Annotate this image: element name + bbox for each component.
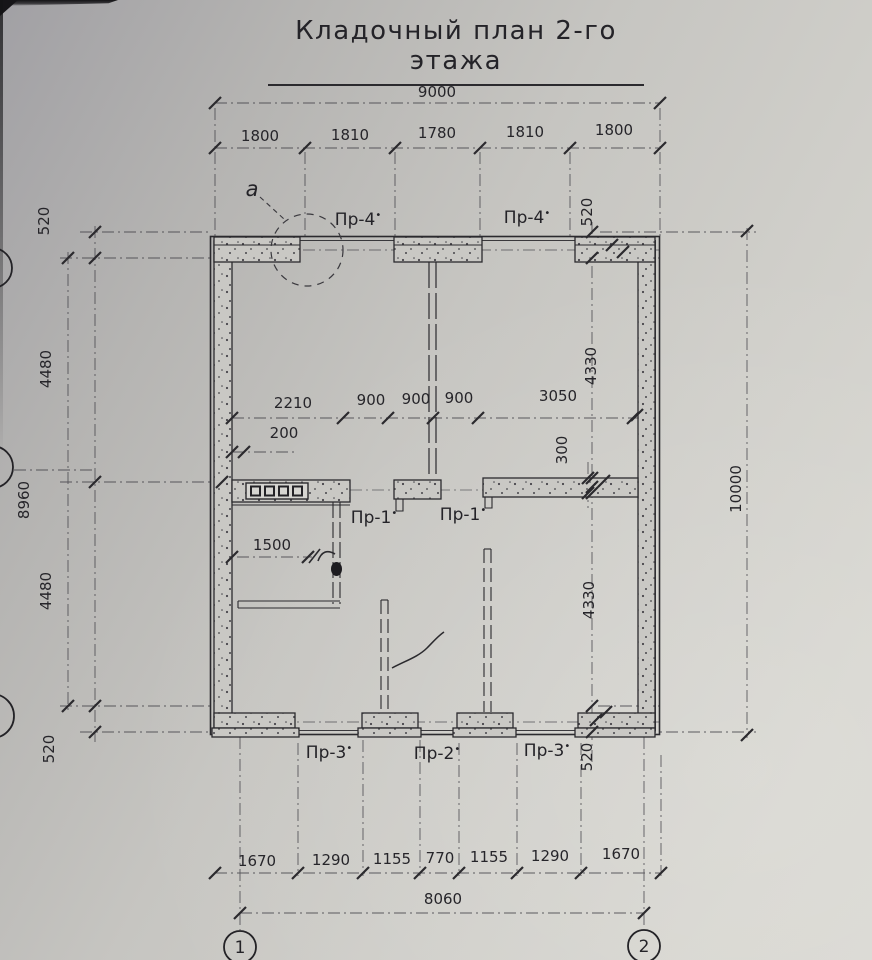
axis-label-1: 1 <box>235 938 246 958</box>
partition-a <box>381 600 388 712</box>
dim-bottom-seg: 1670 <box>238 852 276 870</box>
dim-bottom-seg: 1155 <box>373 850 411 868</box>
mid-wall-lintel-pr1 <box>394 480 441 499</box>
bottom-pier-right <box>578 713 655 728</box>
pencil-s-curve <box>392 632 444 668</box>
dim-overall-top: 9000 <box>418 83 456 101</box>
axis-bubble-left-top <box>0 248 12 288</box>
label-pr1-right: Пр-1• <box>440 505 486 525</box>
dim-offset-200: 200 <box>270 424 299 442</box>
dim-overall-left: 8960 <box>15 481 33 519</box>
axis-label-2: 2 <box>639 937 650 957</box>
dim-interior: 900 <box>357 391 386 409</box>
lintel-pr3-right <box>453 728 516 737</box>
dim-right-seg: 4330 <box>580 581 598 619</box>
dim-top-seg: 1780 <box>418 124 456 142</box>
dim-bottom-seg: 1290 <box>531 847 569 865</box>
partition-left-horizontal <box>238 601 340 608</box>
dim-left-seg: 520 <box>40 735 58 764</box>
right-wall <box>638 241 655 731</box>
dim-top-seg: 1800 <box>241 127 279 145</box>
dim-bottom-seg: 1290 <box>312 851 350 869</box>
axis-bubble-left-mid <box>0 446 13 488</box>
dim-bottom-seg: 1670 <box>602 845 640 863</box>
lintel-pr2 <box>358 728 421 737</box>
dim-right-seg: 300 <box>553 436 571 465</box>
partition-b <box>484 549 491 712</box>
dim-interior: 900 <box>445 389 474 407</box>
dim-interior: 2210 <box>274 394 312 412</box>
dim-interior: 3050 <box>539 387 577 405</box>
axis-bubble-left-bottom <box>0 694 14 738</box>
dim-overall-right: 10000 <box>727 465 745 513</box>
label-pr4-right: Пр-4• <box>504 208 550 228</box>
lintel-pr3-left <box>212 728 299 737</box>
bottom-pier-midright <box>457 713 513 728</box>
bottom-pier-left <box>214 713 295 728</box>
dim-right-seg: 520 <box>578 198 596 227</box>
callout-leader <box>260 197 284 219</box>
callout-a-label: а <box>246 177 259 201</box>
dim-top-seg: 1810 <box>506 123 544 141</box>
dim-door-1500: 1500 <box>253 536 291 554</box>
dim-overall-bottom: 8060 <box>424 890 462 908</box>
dim-top-seg: 1800 <box>595 121 633 139</box>
dim-right-seg: 4330 <box>582 347 600 385</box>
dim-left-seg: 520 <box>35 207 53 236</box>
dim-interior: 900 <box>402 390 431 408</box>
scanned-drawing-page: Кладочный план 2-го этажа <box>0 0 872 960</box>
dim-left-seg: 4480 <box>37 572 55 610</box>
bottom-pier-midleft <box>362 713 418 728</box>
dim-right-seg: 520 <box>578 743 596 772</box>
top-pier-left <box>214 237 300 262</box>
top-pier-middle <box>394 237 482 262</box>
dim-bottom-seg: 770 <box>426 849 455 867</box>
dim-left-seg: 4480 <box>37 350 55 388</box>
floor-plan-svg: 1 2 <box>0 0 872 960</box>
label-pr4-left: Пр-4• <box>335 210 381 230</box>
ventilation-block <box>246 483 308 499</box>
label-pr3-right: Пр-3• <box>524 741 570 761</box>
label-pr3-left: Пр-3• <box>306 743 352 763</box>
label-pr1-left: Пр-1• <box>351 508 397 528</box>
partition-top-centre <box>429 262 436 478</box>
mid-wall-right <box>483 478 638 497</box>
pencil-blob-mark <box>331 562 342 576</box>
label-pr2: Пр-2• <box>414 744 460 764</box>
dim-bottom-seg: 1155 <box>470 848 508 866</box>
callout-a-group <box>260 197 343 286</box>
dim-top-seg: 1810 <box>331 126 369 144</box>
